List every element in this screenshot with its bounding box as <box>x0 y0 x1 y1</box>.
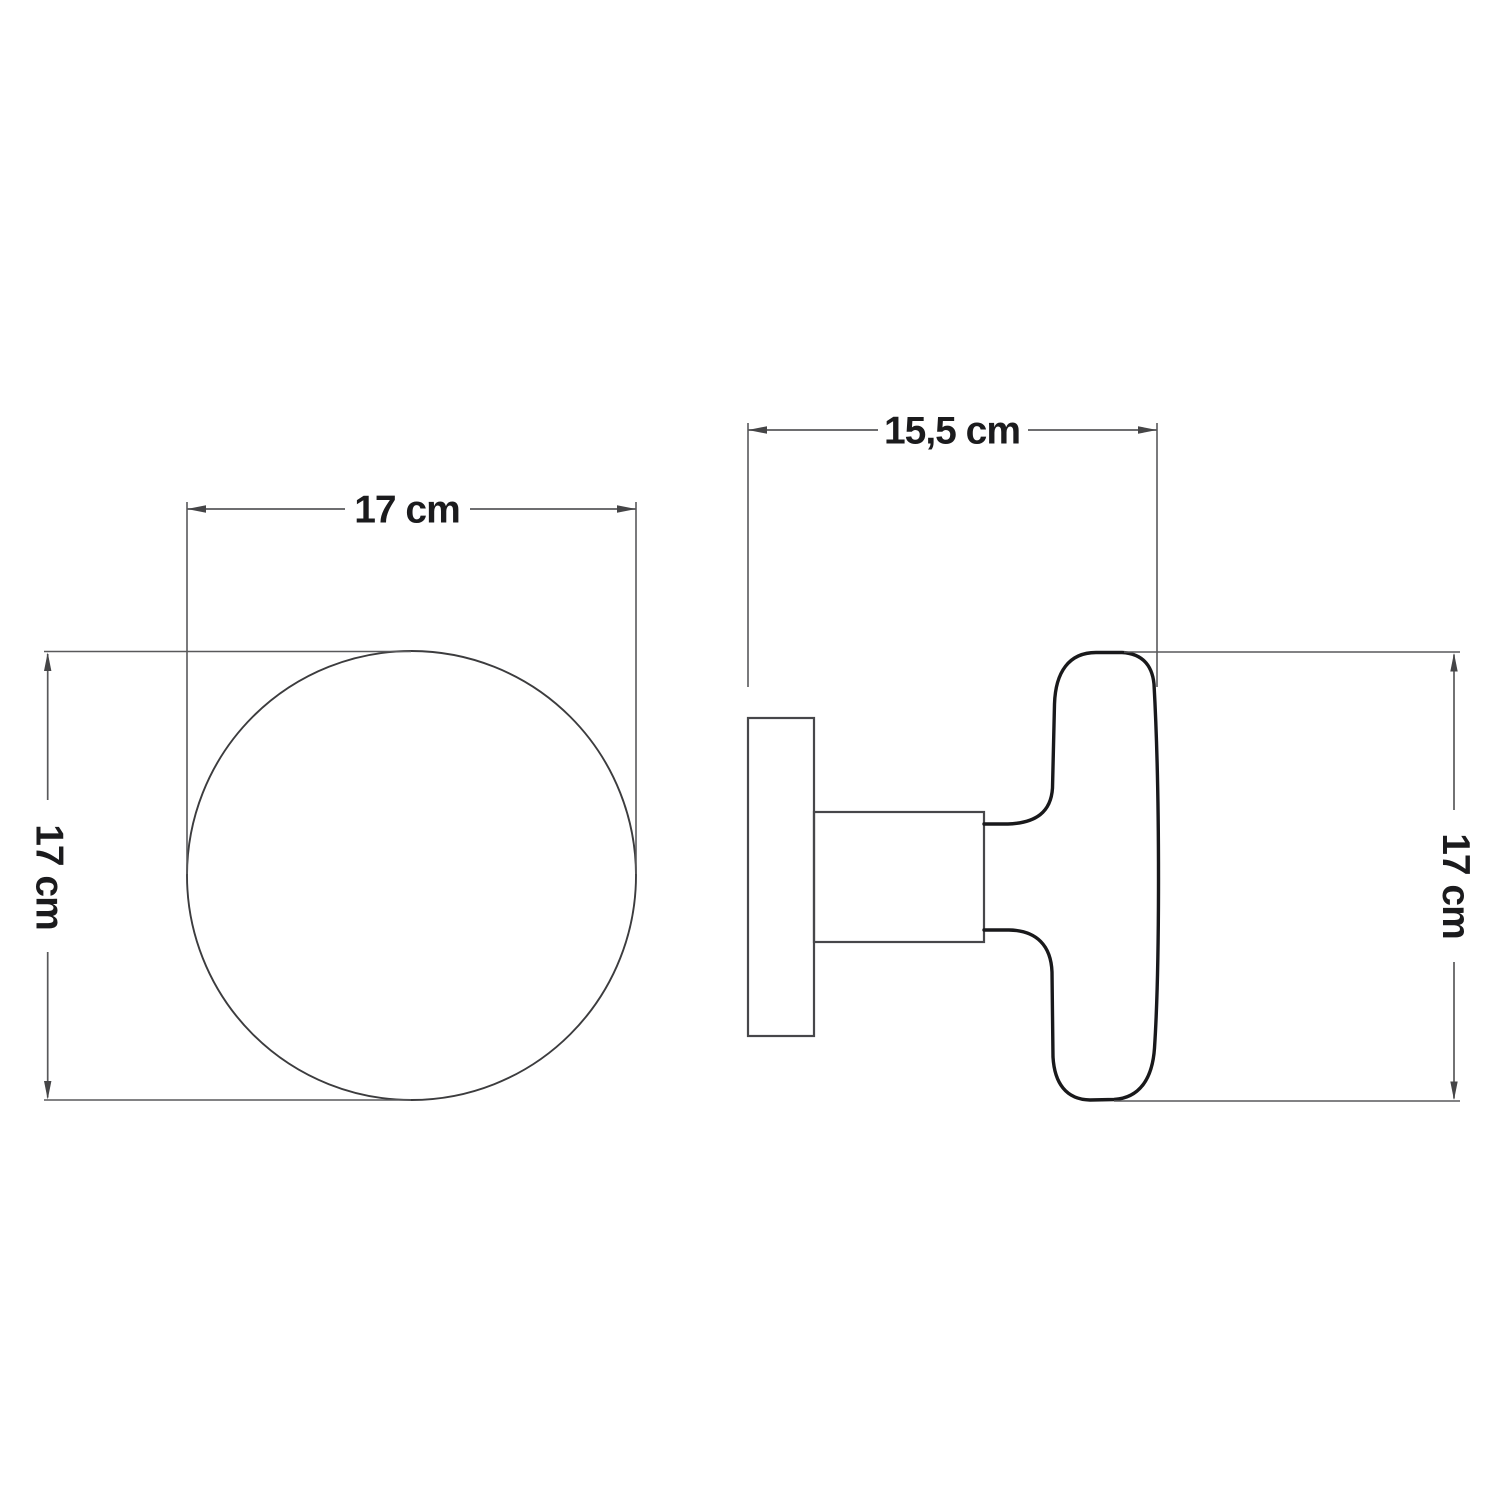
front-view: 17 cm 17 cm <box>28 489 637 1101</box>
arrow-right-icon <box>617 505 636 513</box>
side-depth-dimension: 15,5 cm <box>748 410 1157 688</box>
arrow-down-icon <box>1450 1082 1457 1101</box>
side-height-dimension: 17 cm <box>1114 652 1477 1101</box>
arrow-left-icon <box>187 505 206 513</box>
side-knob-profile <box>984 653 1159 1101</box>
side-wall-plate <box>748 718 814 1036</box>
side-depth-label: 15,5 cm <box>884 410 1020 453</box>
arrow-left-icon <box>748 426 767 434</box>
front-circle-outline <box>187 651 636 1100</box>
front-height-label: 17 cm <box>28 824 71 930</box>
front-width-dimension: 17 cm <box>187 489 636 875</box>
side-view: 15,5 cm 17 cm <box>748 410 1477 1102</box>
dimension-drawing-canvas: 17 cm 17 cm <box>0 0 1500 1500</box>
arrow-down-icon <box>44 1081 51 1100</box>
front-width-label: 17 cm <box>354 489 460 532</box>
arrow-up-icon <box>1450 653 1457 672</box>
arrow-up-icon <box>44 653 51 672</box>
side-stem <box>814 812 984 942</box>
front-height-dimension: 17 cm <box>28 652 412 1101</box>
arrow-right-icon <box>1138 426 1157 434</box>
dimension-drawing: 17 cm 17 cm <box>0 0 1500 1500</box>
side-height-label: 17 cm <box>1434 833 1477 939</box>
